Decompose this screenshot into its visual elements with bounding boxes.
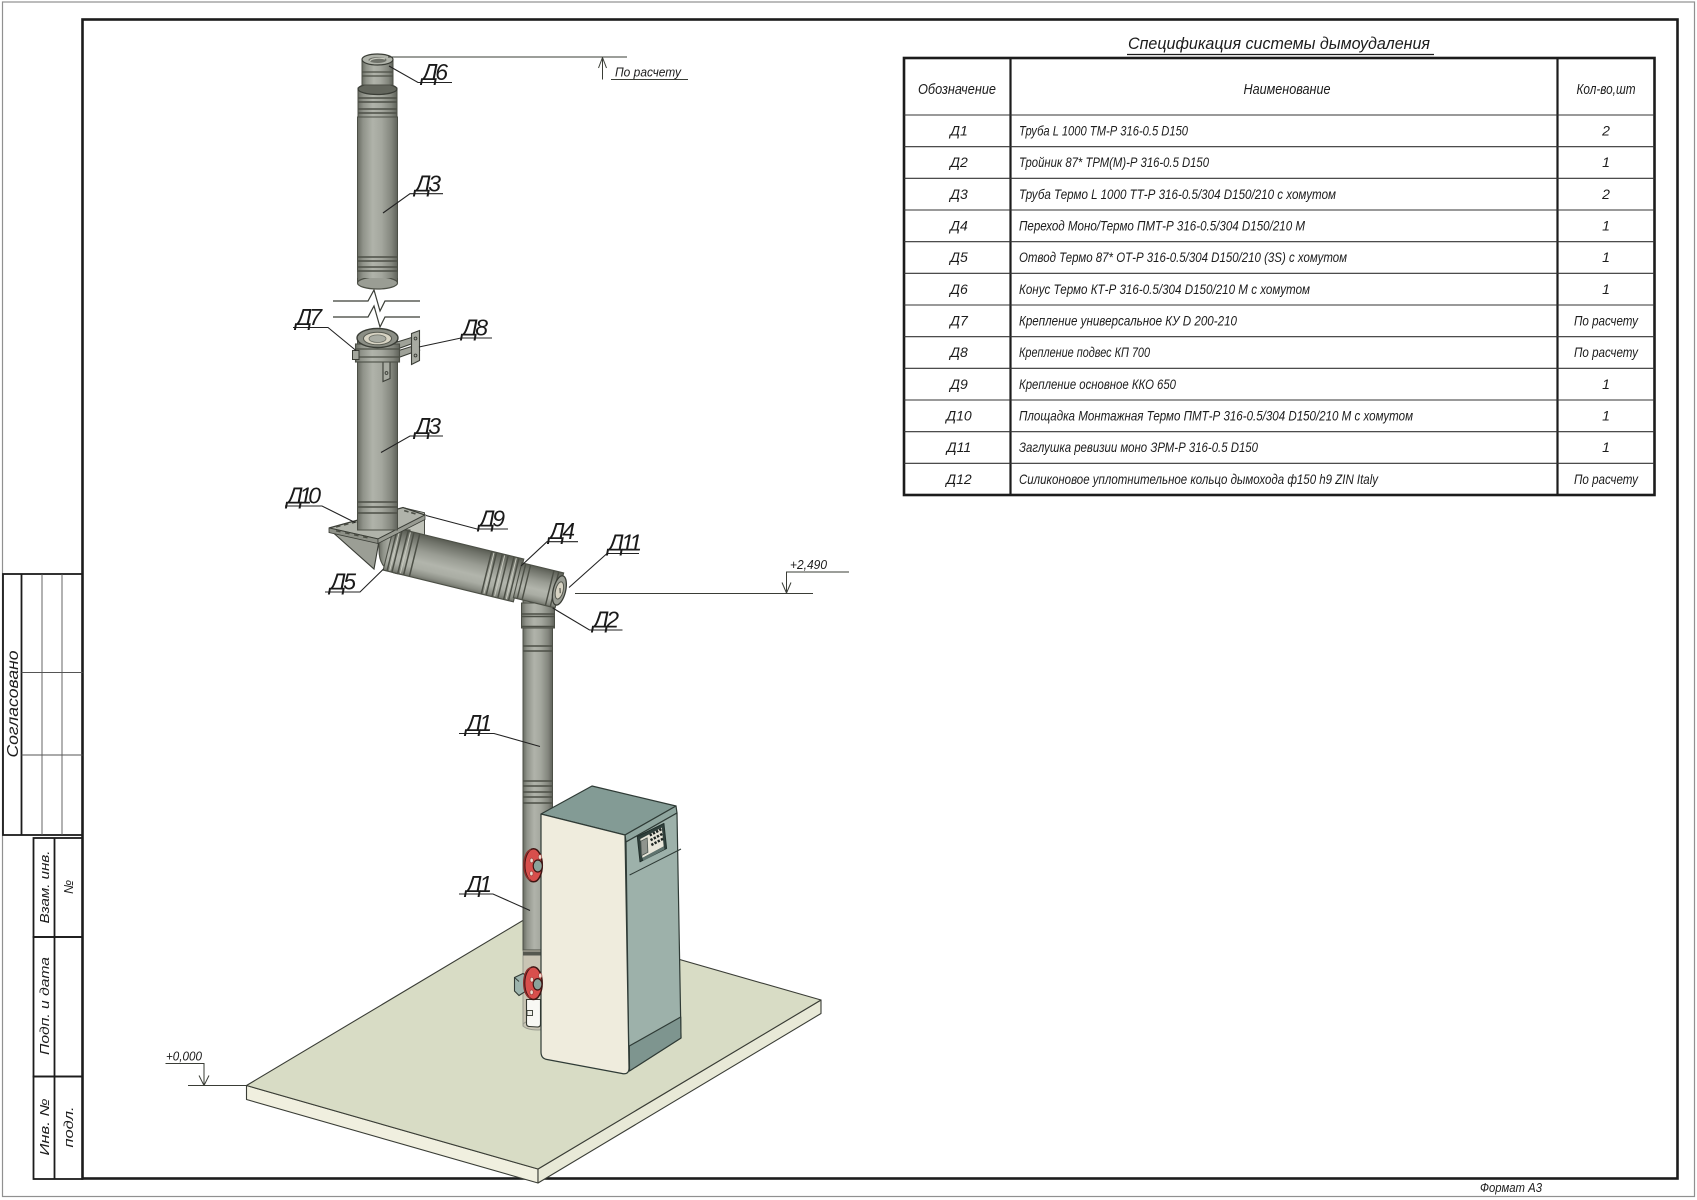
svg-text:1: 1 [1602, 154, 1610, 170]
svg-text:Д9: Д9 [948, 376, 968, 392]
svg-text:1: 1 [1602, 249, 1610, 265]
svg-text:Обозначение: Обозначение [918, 81, 996, 98]
svg-text:Д9: Д9 [476, 506, 505, 532]
svg-text:Кол-во,шт: Кол-во,шт [1577, 81, 1636, 98]
svg-text:Д5: Д5 [948, 249, 968, 265]
svg-text:Отвод Термо 87* ОТ-Р 316-0.5/3: Отвод Термо 87* ОТ-Р 316-0.5/304 D150/21… [1019, 249, 1347, 265]
svg-text:Наименование: Наименование [1244, 81, 1331, 98]
svg-text:Д3: Д3 [412, 171, 441, 197]
svg-text:Д2: Д2 [590, 607, 619, 633]
svg-text:Тройник 87* ТРМ(М)-Р 316-0.5 D: Тройник 87* ТРМ(М)-Р 316-0.5 D150 [1019, 154, 1209, 170]
svg-text:Крепление подвес КП 700: Крепление подвес КП 700 [1019, 344, 1150, 360]
svg-text:По расчету: По расчету [1574, 313, 1639, 329]
svg-text:1: 1 [1602, 281, 1610, 297]
svg-text:По расчету: По расчету [1574, 471, 1639, 487]
svg-text:1: 1 [1602, 376, 1610, 392]
svg-text:Д11: Д11 [605, 530, 642, 556]
svg-text:Д2: Д2 [948, 154, 968, 170]
svg-text:подл.: подл. [61, 1107, 76, 1148]
svg-text:1: 1 [1602, 408, 1610, 424]
svg-text:Согласовано: Согласовано [5, 650, 22, 757]
svg-text:Д11: Д11 [945, 439, 971, 455]
svg-text:Крепление основное ККО 650: Крепление основное ККО 650 [1019, 376, 1176, 392]
svg-text:Д1: Д1 [463, 710, 492, 736]
svg-text:Заглушка ревизии моно ЗРМ-Р 31: Заглушка ревизии моно ЗРМ-Р 316-0.5 D150 [1019, 439, 1258, 455]
svg-text:Д8: Д8 [948, 344, 968, 360]
svg-text:По расчету: По расчету [615, 65, 682, 80]
svg-text:Д6: Д6 [948, 281, 968, 297]
svg-text:Силиконовое уплотнительное кол: Силиконовое уплотнительное кольцо дымохо… [1019, 471, 1379, 487]
svg-text:Взам. инв.: Взам. инв. [37, 851, 52, 924]
svg-text:Д1: Д1 [948, 123, 968, 139]
svg-text:Формат А3: Формат А3 [1480, 1181, 1542, 1195]
svg-text:Д3: Д3 [948, 186, 968, 202]
svg-text:Конус Термо КТ-Р 316-0.5/304 D: Конус Термо КТ-Р 316-0.5/304 D150/210 М … [1019, 281, 1310, 297]
svg-text:1: 1 [1602, 439, 1610, 455]
svg-text:Труба Термо L 1000 ТТ-Р 316-0.: Труба Термо L 1000 ТТ-Р 316-0.5/304 D150… [1019, 186, 1336, 202]
svg-text:Подп. и дата: Подп. и дата [37, 957, 52, 1055]
svg-text:+0,000: +0,000 [166, 1049, 203, 1064]
svg-text:Д5: Д5 [327, 569, 356, 595]
svg-text:Д10: Д10 [944, 408, 972, 424]
svg-text:Переход Моно/Термо ПМТ-Р 316-0: Переход Моно/Термо ПМТ-Р 316-0.5/304 D15… [1019, 218, 1305, 234]
svg-text:Д1: Д1 [463, 871, 492, 897]
svg-text:2: 2 [1601, 123, 1610, 139]
svg-text:Д12: Д12 [944, 471, 972, 487]
svg-text:№: № [61, 880, 76, 894]
svg-text:Д4: Д4 [948, 218, 968, 234]
svg-text:+2,490: +2,490 [790, 557, 828, 572]
svg-text:1: 1 [1602, 218, 1610, 234]
svg-text:По расчету: По расчету [1574, 344, 1639, 360]
svg-text:Д6: Д6 [419, 59, 448, 85]
svg-text:Д7: Д7 [948, 313, 969, 329]
svg-text:Д8: Д8 [459, 315, 488, 341]
svg-text:Д10: Д10 [284, 483, 321, 509]
svg-text:2: 2 [1601, 186, 1610, 202]
svg-text:Инв. №: Инв. № [37, 1099, 52, 1156]
svg-text:Д7: Д7 [293, 304, 323, 330]
svg-text:Площадка Монтажная Термо ПМТ-Р: Площадка Монтажная Термо ПМТ-Р 316-0.5/3… [1019, 408, 1413, 424]
svg-text:Труба L 1000 ТМ-Р 316-0.5 D150: Труба L 1000 ТМ-Р 316-0.5 D150 [1019, 123, 1188, 139]
svg-text:Крепление универсальное КУ D 2: Крепление универсальное КУ D 200-210 [1019, 313, 1237, 329]
svg-text:Спецификация системы дымоудале: Спецификация системы дымоудаления [1128, 34, 1430, 53]
svg-text:Д3: Д3 [412, 413, 441, 439]
svg-text:Д4: Д4 [546, 518, 575, 544]
